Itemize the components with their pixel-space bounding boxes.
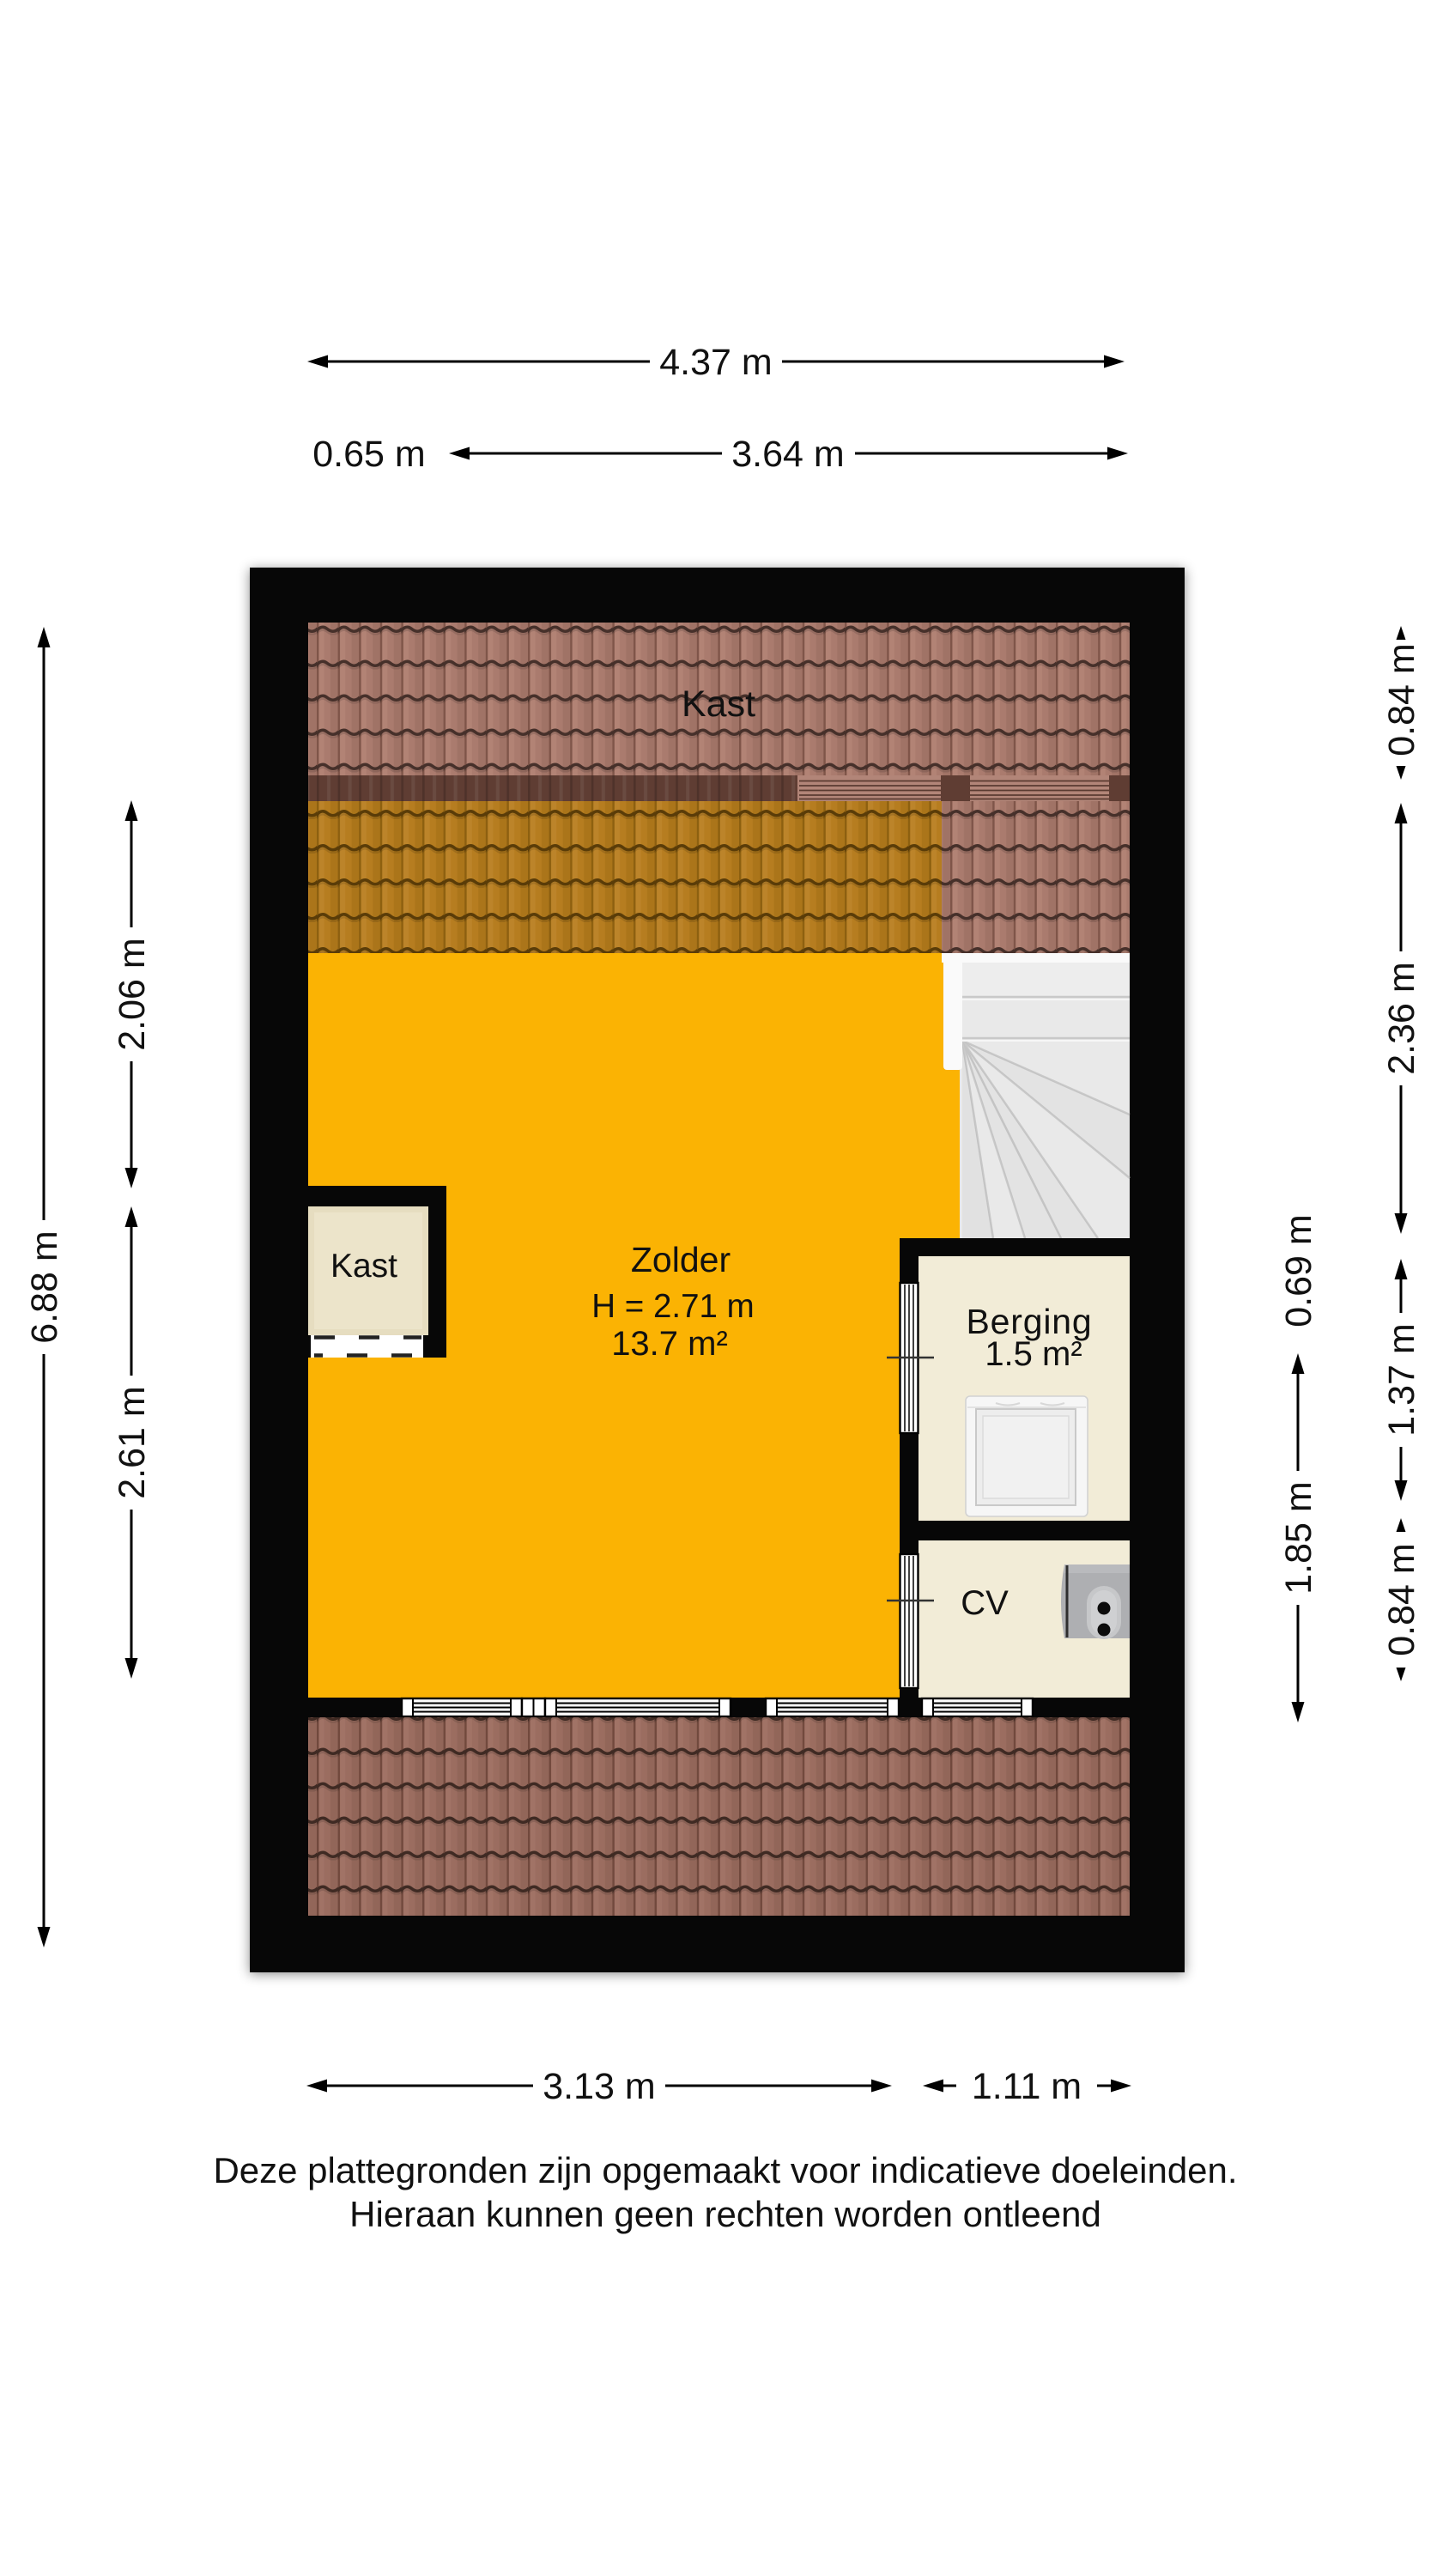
svg-text:CV: CV — [961, 1584, 1009, 1622]
svg-text:0.65 m: 0.65 m — [312, 434, 425, 475]
svg-text:Kast: Kast — [682, 683, 755, 725]
svg-text:4.37 m: 4.37 m — [659, 342, 772, 383]
svg-text:2.36 m: 2.36 m — [1381, 962, 1422, 1074]
svg-text:0.84 m: 0.84 m — [1381, 1543, 1422, 1656]
svg-text:Hieraan kunnen geen rechten wo: Hieraan kunnen geen rechten worden ontle… — [349, 2194, 1101, 2234]
svg-text:Zolder: Zolder — [631, 1240, 731, 1279]
svg-text:1.85 m: 1.85 m — [1278, 1481, 1319, 1594]
svg-text:3.13 m: 3.13 m — [543, 2066, 655, 2107]
svg-text:1.5 m²: 1.5 m² — [985, 1335, 1082, 1373]
svg-text:2.61 m: 2.61 m — [112, 1386, 153, 1498]
svg-text:3.64 m: 3.64 m — [731, 434, 844, 475]
svg-text:2.06 m: 2.06 m — [112, 938, 153, 1050]
svg-text:Kast: Kast — [330, 1248, 397, 1285]
svg-text:0.69 m: 0.69 m — [1278, 1214, 1319, 1327]
svg-text:1.11 m: 1.11 m — [972, 2066, 1082, 2107]
svg-text:13.7 m²: 13.7 m² — [611, 1325, 728, 1363]
svg-text:0.84 m: 0.84 m — [1381, 643, 1422, 756]
svg-text:H = 2.71 m: H = 2.71 m — [591, 1288, 754, 1325]
svg-text:1.37 m: 1.37 m — [1381, 1323, 1422, 1436]
svg-text:6.88 m: 6.88 m — [24, 1230, 65, 1343]
svg-text:Deze plattegronden zijn opgema: Deze plattegronden zijn opgemaakt voor i… — [213, 2150, 1237, 2190]
